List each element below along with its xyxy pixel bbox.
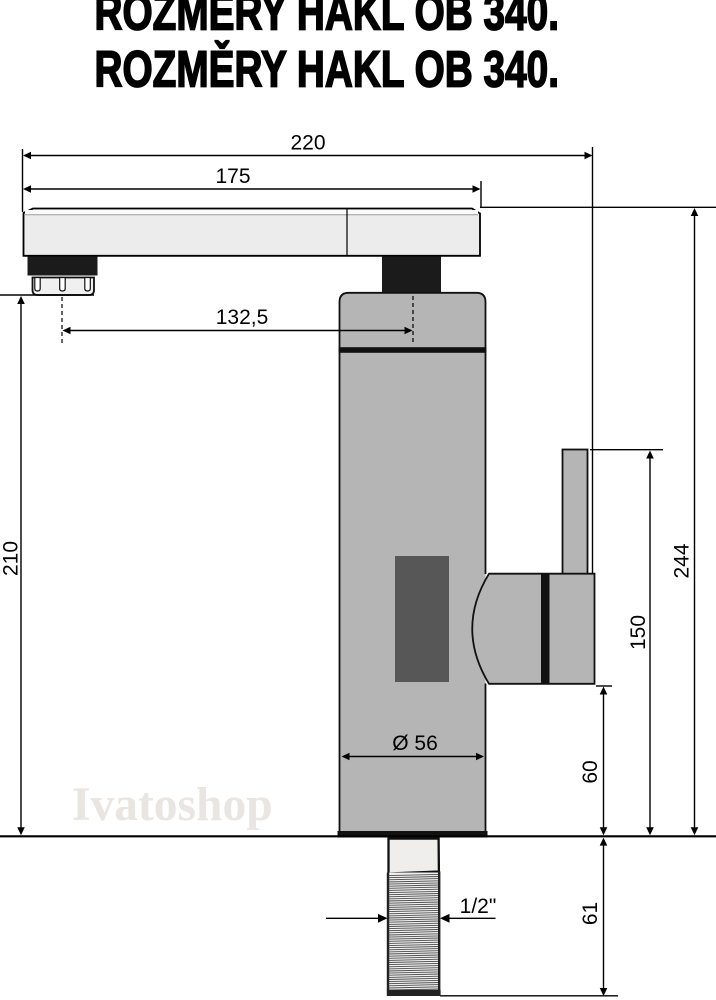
svg-text:Ø 56: Ø 56 xyxy=(392,732,438,755)
svg-text:61: 61 xyxy=(579,902,602,925)
svg-text:1/2": 1/2" xyxy=(460,895,497,918)
svg-text:175: 175 xyxy=(215,165,250,188)
svg-text:220: 220 xyxy=(290,132,325,155)
svg-text:150: 150 xyxy=(627,615,650,650)
svg-text:ROZMĚRY HAKL OB 340.: ROZMĚRY HAKL OB 340. xyxy=(95,0,560,41)
svg-text:244: 244 xyxy=(671,543,694,578)
svg-text:210: 210 xyxy=(0,541,23,576)
svg-text:Ivatoshop: Ivatoshop xyxy=(72,779,273,831)
svg-text:ROZMĚRY HAKL OB 340.: ROZMĚRY HAKL OB 340. xyxy=(95,40,560,98)
svg-text:60: 60 xyxy=(579,760,602,783)
svg-text:132,5: 132,5 xyxy=(216,306,269,329)
